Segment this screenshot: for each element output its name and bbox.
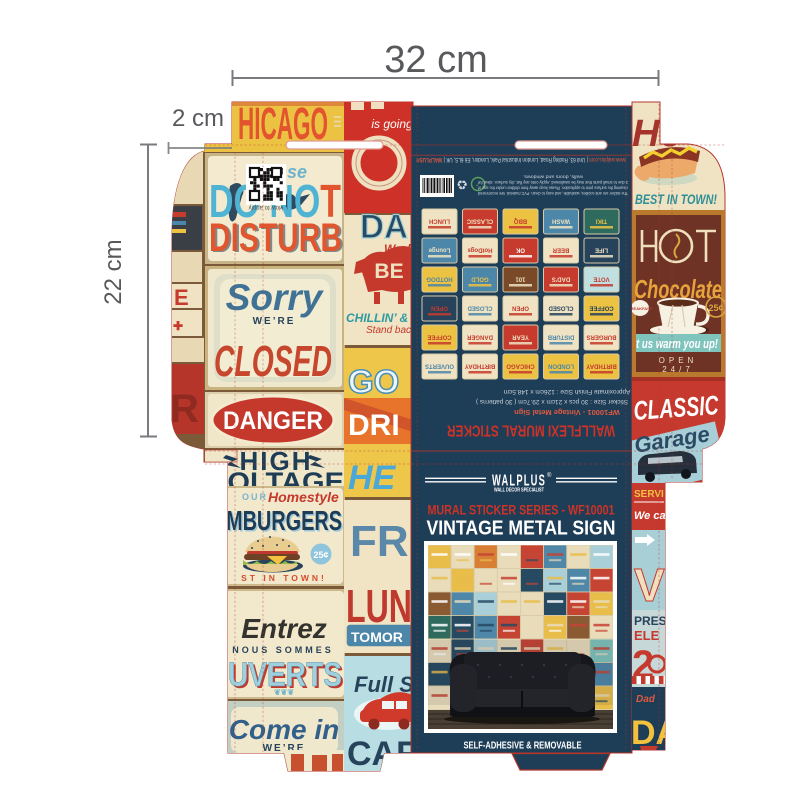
svg-text:DAD'S: DAD'S bbox=[552, 276, 570, 282]
svg-text:ELE: ELE bbox=[634, 628, 660, 643]
svg-text:OPEN: OPEN bbox=[512, 305, 529, 311]
svg-text:We ca: We ca bbox=[634, 510, 666, 522]
svg-text:SERVI: SERVI bbox=[634, 489, 664, 500]
svg-text:LONDON: LONDON bbox=[548, 363, 574, 369]
svg-text:22 cm: 22 cm bbox=[100, 239, 127, 304]
svg-text:GO: GO bbox=[348, 363, 399, 400]
svg-text:♻: ♻ bbox=[456, 177, 468, 192]
svg-text:MBURGERS: MBURGERS bbox=[226, 505, 342, 536]
svg-text:FR: FR bbox=[350, 517, 409, 566]
svg-text:Sticker Size : 30 pcs x 21cm x: Sticker Size : 30 pcs x 21cm x 29.7cm ( … bbox=[476, 398, 628, 405]
svg-text:OK: OK bbox=[515, 247, 525, 253]
svg-text:Lounge: Lounge bbox=[428, 247, 450, 253]
svg-text:Come in: Come in bbox=[229, 714, 339, 745]
svg-text:Dad: Dad bbox=[636, 694, 656, 705]
svg-text:ST IN TOWN!: ST IN TOWN! bbox=[241, 573, 327, 583]
svg-text:WALLFLEXI MURAL STICKER: WALLFLEXI MURAL STICKER bbox=[447, 422, 615, 439]
svg-text:BIRTHDAY: BIRTHDAY bbox=[465, 363, 495, 369]
svg-text:www.walplus.com | Unit 63, R: www.walplus.com | Unit 63, Roding Road, … bbox=[416, 156, 627, 163]
svg-text:DRI: DRI bbox=[348, 409, 400, 442]
svg-text:WALL DECOR SPECIALIST: WALL DECOR SPECIALIST bbox=[494, 488, 544, 494]
svg-text:CHILLIN’ &: CHILLIN’ & bbox=[346, 311, 408, 325]
svg-text:HOTDOG: HOTDOG bbox=[426, 276, 453, 282]
svg-text:R: R bbox=[170, 387, 199, 431]
svg-text:32 cm: 32 cm bbox=[384, 39, 487, 81]
svg-text:Entrez: Entrez bbox=[241, 613, 327, 644]
svg-text:HotDogs: HotDogs bbox=[467, 247, 493, 253]
svg-text:t us warm you up!: t us warm you up! bbox=[636, 336, 718, 351]
svg-text:NOUS SOMMES: NOUS SOMMES bbox=[232, 645, 334, 655]
svg-text:LIFE: LIFE bbox=[595, 247, 608, 253]
svg-text:is going: is going bbox=[371, 117, 413, 131]
svg-text:cleaning the surface prior to: cleaning the surface prior to applicatio… bbox=[477, 186, 628, 191]
svg-text:CLOSED: CLOSED bbox=[548, 305, 574, 311]
svg-text:24/7: 24/7 bbox=[662, 365, 694, 374]
svg-text:GOLD: GOLD bbox=[471, 276, 489, 282]
svg-text:CLASSIC: CLASSIC bbox=[466, 218, 493, 224]
svg-text:V: V bbox=[634, 559, 665, 611]
svg-text:BEST IN TOWN!: BEST IN TOWN! bbox=[635, 191, 717, 207]
svg-text:CLOSED: CLOSED bbox=[214, 337, 332, 386]
svg-text:WASH: WASH bbox=[552, 218, 570, 224]
svg-text:Approximate Finish Size : 126c: Approximate Finish Size : 126cm x 148.5c… bbox=[504, 388, 631, 395]
svg-text:BBQ: BBQ bbox=[514, 218, 528, 224]
svg-text:HE: HE bbox=[348, 459, 397, 497]
svg-text:walls, doors and windows.: walls, doors and windows. bbox=[523, 175, 583, 180]
svg-text:Sorry: Sorry bbox=[226, 277, 325, 318]
svg-text:25¢: 25¢ bbox=[313, 550, 328, 560]
svg-text:DANGER: DANGER bbox=[223, 407, 323, 435]
svg-text:The sticker are anti-cockles,: The sticker are anti-cockles, washable, … bbox=[477, 191, 628, 196]
svg-text:YEAR: YEAR bbox=[511, 334, 528, 340]
svg-text:VOTE: VOTE bbox=[593, 276, 609, 282]
svg-text:VINTAGE METAL SIGN: VINTAGE METAL SIGN bbox=[427, 518, 616, 540]
svg-text:DA: DA bbox=[360, 208, 408, 246]
svg-text:✚: ✚ bbox=[173, 319, 183, 333]
svg-text:How to apply: How to apply bbox=[249, 204, 284, 210]
svg-text:CHICAGO: CHICAGO bbox=[506, 363, 535, 369]
svg-text:OPEN: OPEN bbox=[431, 305, 448, 311]
svg-text:TOMOR: TOMOR bbox=[351, 629, 403, 645]
svg-text:BE: BE bbox=[374, 260, 403, 283]
svg-text:COFFEE: COFFEE bbox=[427, 334, 451, 340]
svg-text:COFFEE: COFFEE bbox=[589, 305, 613, 311]
svg-text:DISTURB: DISTURB bbox=[547, 334, 574, 340]
svg-text:WE’RE: WE’RE bbox=[253, 316, 296, 327]
svg-text:LUNCH: LUNCH bbox=[429, 218, 450, 224]
svg-text:2 cm: 2 cm bbox=[172, 105, 224, 132]
svg-text:BEER: BEER bbox=[552, 247, 569, 253]
svg-text:25¢: 25¢ bbox=[708, 303, 723, 313]
svg-text:Homestyle: Homestyle bbox=[268, 489, 339, 505]
svg-text:101: 101 bbox=[515, 276, 526, 282]
svg-text:DANGER: DANGER bbox=[466, 334, 493, 340]
svg-text:BURGERS: BURGERS bbox=[586, 334, 616, 340]
svg-text:3 due to small parts that may: 3 due to small parts that may be swallow… bbox=[477, 180, 628, 185]
svg-text:SELF-ADHESIVE & REMOVABLE: SELF-ADHESIVE & REMOVABLE bbox=[464, 740, 582, 752]
svg-text:TIKI: TIKI bbox=[596, 218, 608, 224]
svg-text:BIRTHDAY: BIRTHDAY bbox=[586, 363, 616, 369]
svg-text:OPEN: OPEN bbox=[659, 356, 698, 365]
svg-text:DISTURB: DISTURB bbox=[209, 216, 342, 260]
svg-text:MURAL STICKER SERIES - WF10001: MURAL STICKER SERIES - WF10001 bbox=[428, 503, 615, 518]
svg-text:❦❦❦: ❦❦❦ bbox=[274, 688, 294, 697]
svg-text:E: E bbox=[174, 285, 189, 310]
svg-text:WF10001 - Vintage Metal Sign: WF10001 - Vintage Metal Sign bbox=[514, 408, 620, 417]
svg-text:CLOSED: CLOSED bbox=[467, 305, 493, 311]
svg-text:®: ® bbox=[547, 472, 552, 479]
svg-text:PRES: PRES bbox=[634, 614, 667, 628]
svg-text:OUR: OUR bbox=[242, 492, 268, 502]
svg-text:OUVERTS: OUVERTS bbox=[425, 363, 454, 369]
